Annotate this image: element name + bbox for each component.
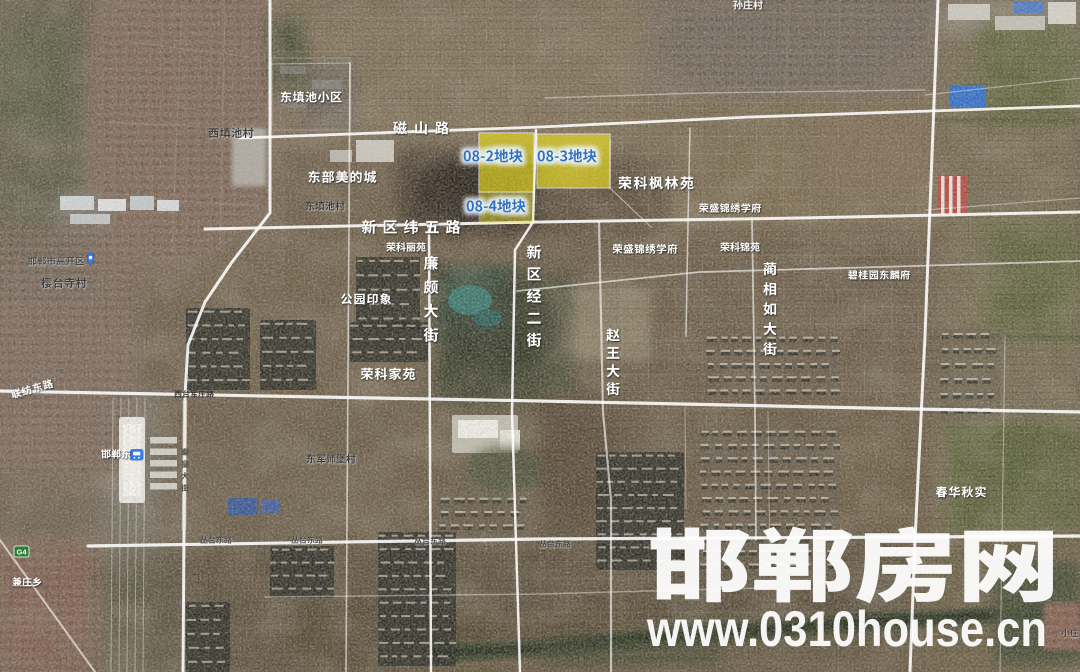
svg-text:www.0310house.cn: www.0310house.cn: [646, 601, 1047, 657]
svg-text:G4: G4: [16, 548, 27, 557]
